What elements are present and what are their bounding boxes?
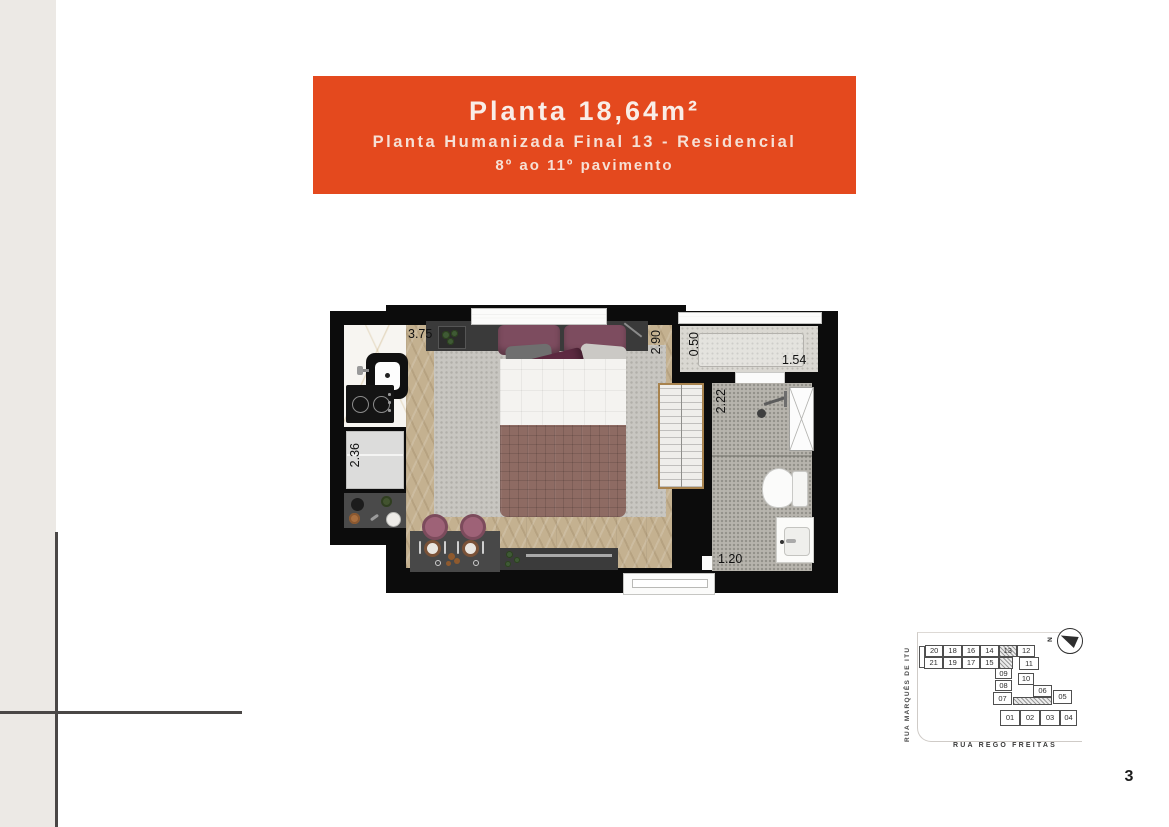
keyplan-unit-21: 21	[924, 657, 943, 669]
cooktop	[346, 385, 394, 423]
cooktop-knob	[388, 401, 391, 404]
keyplan-unit-05: 05	[1053, 690, 1072, 704]
toilet-tank	[792, 471, 808, 507]
door-jamb	[702, 556, 712, 570]
place-setting	[462, 540, 479, 557]
keyplan-unit-07: 07	[993, 692, 1012, 705]
cutlery-icon	[482, 541, 484, 554]
bathroom-vanity	[776, 517, 814, 563]
utensil-icon	[370, 514, 379, 522]
shower-threshold	[712, 455, 812, 457]
plant-icon	[506, 551, 513, 558]
sink-drain-icon	[385, 373, 390, 378]
crop-mark-horizontal-line	[0, 711, 242, 714]
keyplan-unit-08: 08	[995, 680, 1012, 691]
floor-plan: 3.752.362.900.501.542.221.20	[330, 305, 838, 598]
keyplan-unit-06: 06	[1033, 685, 1052, 697]
keyplan-unit-01: 01	[1000, 710, 1020, 726]
keyplan-unit-13: 13	[999, 645, 1017, 657]
plant-tray	[438, 326, 466, 349]
dimension-label: 2.90	[649, 330, 663, 354]
keyplan-unit-19: 19	[943, 657, 961, 669]
vanity-tap-icon	[780, 540, 784, 544]
tv-icon	[526, 554, 612, 557]
plan-title: Planta 18,64m²	[313, 95, 856, 127]
plan-subtitle: Planta Humanizada Final 13 - Residencial	[313, 130, 856, 155]
key-plan: RUA MARQUÊS DE ITU RUA REGO FREITAS N 20…	[905, 612, 1089, 754]
cutlery-icon	[457, 541, 459, 554]
brochure-page: Planta 18,64m² Planta Humanizada Final 1…	[0, 0, 1169, 827]
dimension-label: 0.50	[687, 332, 701, 356]
balcony-window	[678, 312, 822, 324]
cup-icon	[473, 560, 479, 566]
sink-faucet-handle	[357, 366, 363, 375]
kitchen-lower-counter	[344, 493, 406, 528]
keyplan-units: 2018161413122119171511091008070605010203…	[905, 612, 1089, 754]
cooktop-knob	[388, 393, 391, 396]
dimension-label: 2.22	[714, 389, 728, 413]
plan-floors: 8º ao 11º pavimento	[313, 155, 856, 177]
keyplan-unit-02: 02	[1020, 710, 1040, 726]
shower-head-icon	[757, 409, 766, 418]
stool	[422, 514, 448, 540]
wardrobe	[658, 383, 704, 489]
plate-icon	[386, 512, 401, 527]
wardrobe-divider	[681, 385, 682, 487]
bread-icon	[454, 558, 460, 564]
place-setting	[424, 540, 441, 557]
keyplan-unit-18: 18	[943, 645, 961, 657]
reading-lamp-arm	[624, 322, 643, 337]
crop-mark-vertical-line	[55, 532, 58, 827]
toilet	[762, 468, 796, 508]
bowl-icon	[351, 498, 364, 511]
plant-icon	[505, 561, 511, 567]
shower-arm	[764, 396, 786, 405]
shower-bracket	[784, 391, 787, 407]
keyplan-unit-11: 11	[1019, 657, 1039, 670]
cooktop-knob	[388, 409, 391, 412]
pot-icon	[349, 513, 360, 524]
plan-title-block: Planta 18,64m² Planta Humanizada Final 1…	[313, 76, 856, 194]
dimension-label: 1.20	[718, 552, 742, 566]
keyplan-unit-12: 12	[1017, 645, 1035, 657]
entrance-door-leaf	[632, 579, 708, 588]
plant-icon	[451, 330, 458, 337]
entrance-door	[623, 573, 715, 595]
dimension-label: 2.36	[348, 443, 362, 467]
keyplan-unit-04: 04	[1060, 710, 1077, 726]
cutlery-icon	[419, 541, 421, 554]
vanity-tap-bar	[786, 539, 796, 543]
keyplan-unit-14: 14	[980, 645, 998, 657]
keyplan-unit-03: 03	[1040, 710, 1060, 726]
page-number: 3	[1114, 768, 1144, 786]
keyplan-unit-17: 17	[962, 657, 980, 669]
dimension-label: 3.75	[408, 327, 432, 341]
keyplan-unit-20: 20	[925, 645, 943, 657]
tv-bench	[500, 548, 618, 570]
left-margin-band	[0, 0, 56, 827]
keyplan-unit-10: 10	[1018, 673, 1034, 685]
stool	[460, 514, 486, 540]
bread-icon	[446, 561, 451, 566]
cup-icon	[435, 560, 441, 566]
plant-icon	[514, 557, 520, 563]
bedroom-window	[471, 308, 607, 325]
dimension-label: 1.54	[782, 353, 806, 367]
dining-counter	[410, 531, 500, 572]
cutlery-icon	[444, 541, 446, 554]
bed-blanket	[500, 425, 626, 517]
keyplan-unit-09: 09	[995, 668, 1012, 679]
plant-icon	[381, 496, 392, 507]
keyplan-hatched-area	[1013, 697, 1052, 705]
keyplan-unit-16: 16	[962, 645, 980, 657]
plant-icon	[447, 338, 454, 345]
burner-icon	[352, 396, 369, 413]
shower-glass-panel	[789, 387, 814, 451]
